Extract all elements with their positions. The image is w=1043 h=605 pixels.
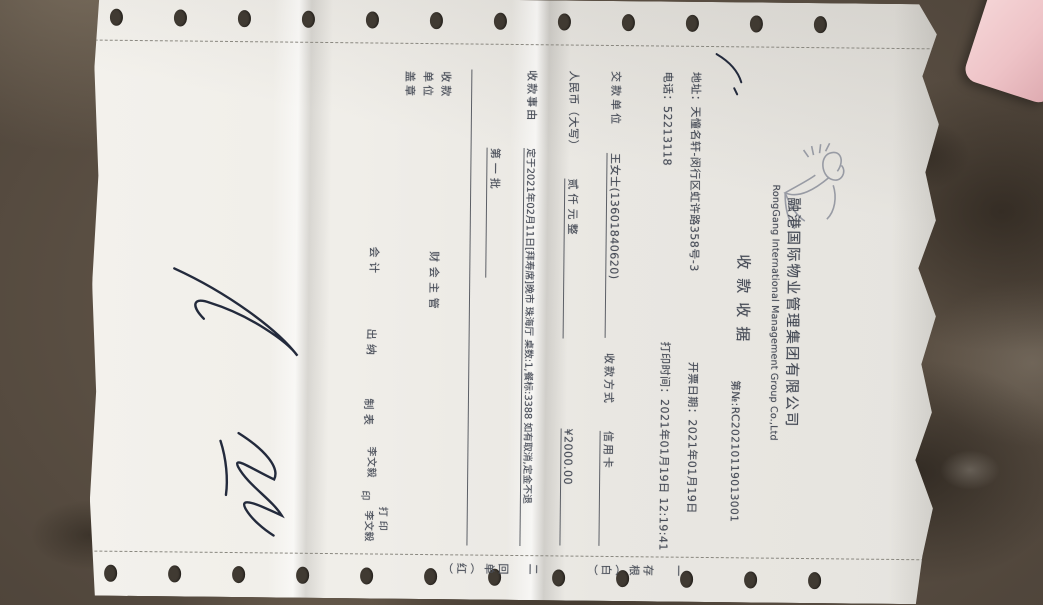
receipt-paper: 融港国际物业管理集团有限公司 RongGang International Ma… <box>89 0 945 604</box>
photo-of-receipt-on-granite-counter: { "scene": { "surface": "granite-counter… <box>0 0 1043 605</box>
copy-strip: 一 存根（白） 二 回单（红） <box>89 0 945 604</box>
copy-strip-line2: 二 回单（红） <box>439 559 539 576</box>
copy-strip-line1: 一 存根（白） <box>584 561 684 578</box>
granite-speckle <box>940 450 1000 490</box>
pink-object-corner <box>962 0 1043 106</box>
